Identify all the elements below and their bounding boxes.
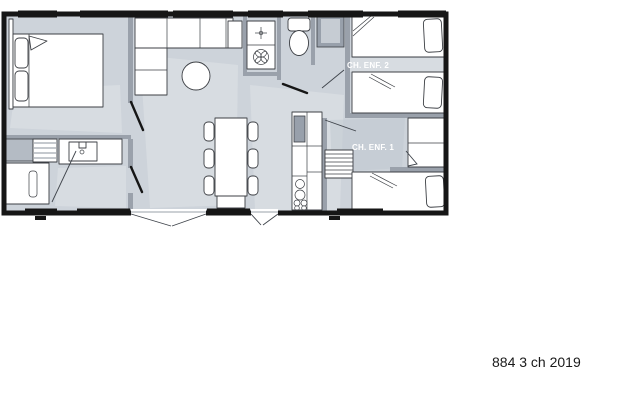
chair [248,149,258,168]
faucet-icon [79,142,86,148]
bathroom-cabinet [5,139,33,161]
stub [35,216,46,220]
wall-bathroom-hall-upper [128,139,133,168]
dining-bench [217,196,245,208]
room-label-ch-enf-1: CH. ENF. 1 [352,143,394,152]
sofa-top [135,18,233,48]
pillow [15,38,28,68]
wall-bedroom-bathroom [5,135,131,139]
window [80,11,168,18]
pillow [423,77,443,109]
shower-cabin [6,163,49,204]
wall-bedroom1-bed [390,167,447,172]
cupboard [228,21,242,48]
side-door-opening [251,209,278,217]
window [337,209,383,216]
chair [204,149,214,168]
window [207,209,250,216]
wardrobe-interior [321,19,340,43]
floor-plan-image: CH. ENF. 2 CH. ENF. 1 [0,0,617,404]
room-label-ch-enf-2: CH. ENF. 2 [347,61,389,70]
window [308,11,363,18]
fridge [294,116,305,142]
window [248,11,283,18]
door-openings [131,209,278,217]
window [25,209,57,216]
chair [204,176,214,195]
pillow [423,19,443,53]
wall-wc-right [311,15,315,65]
caption: 884 3 ch 2019 [492,354,581,370]
pillow [15,71,28,101]
shelf-unit [33,139,57,162]
chair [248,176,258,195]
toilet-tank [288,18,310,31]
window [398,11,446,18]
round-table [182,62,210,90]
bed-headboard [9,19,13,109]
window [173,11,233,18]
wall-bedroom-living [128,15,133,103]
pillow [425,176,445,208]
floor-plan-svg: CH. ENF. 2 CH. ENF. 1 [0,0,617,404]
sofa-side [135,48,167,95]
dining-table [215,118,247,196]
window [77,209,130,216]
chair [248,122,258,141]
toilet-bowl [290,31,309,56]
wall-bedroom2-bedroom1 [345,113,447,118]
stub [329,216,340,220]
wall-wc-left [277,15,281,80]
wall-shower-left [243,15,247,75]
kitchen [292,112,322,210]
patio-door-opening [131,209,206,217]
window [18,11,57,18]
chair [204,122,214,141]
wall-shower-bottom [243,72,281,76]
